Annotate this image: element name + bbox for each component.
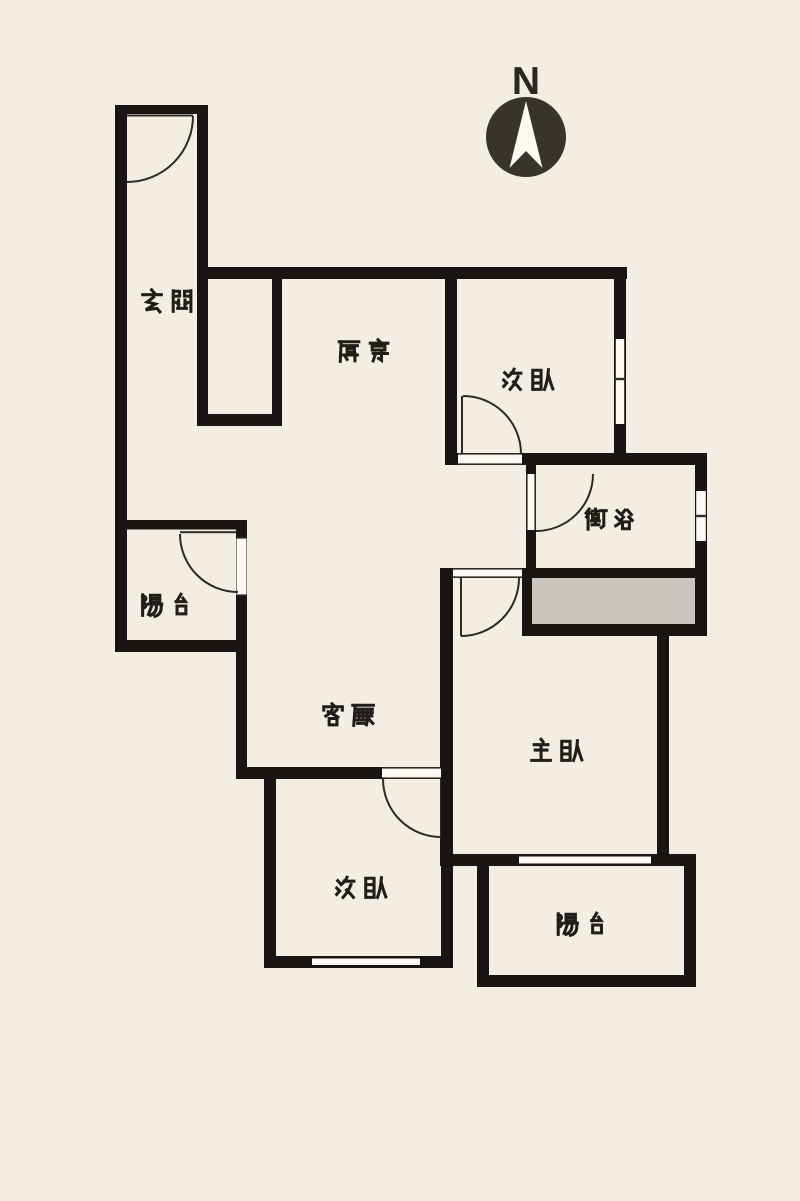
svg-text:N: N: [512, 60, 540, 103]
